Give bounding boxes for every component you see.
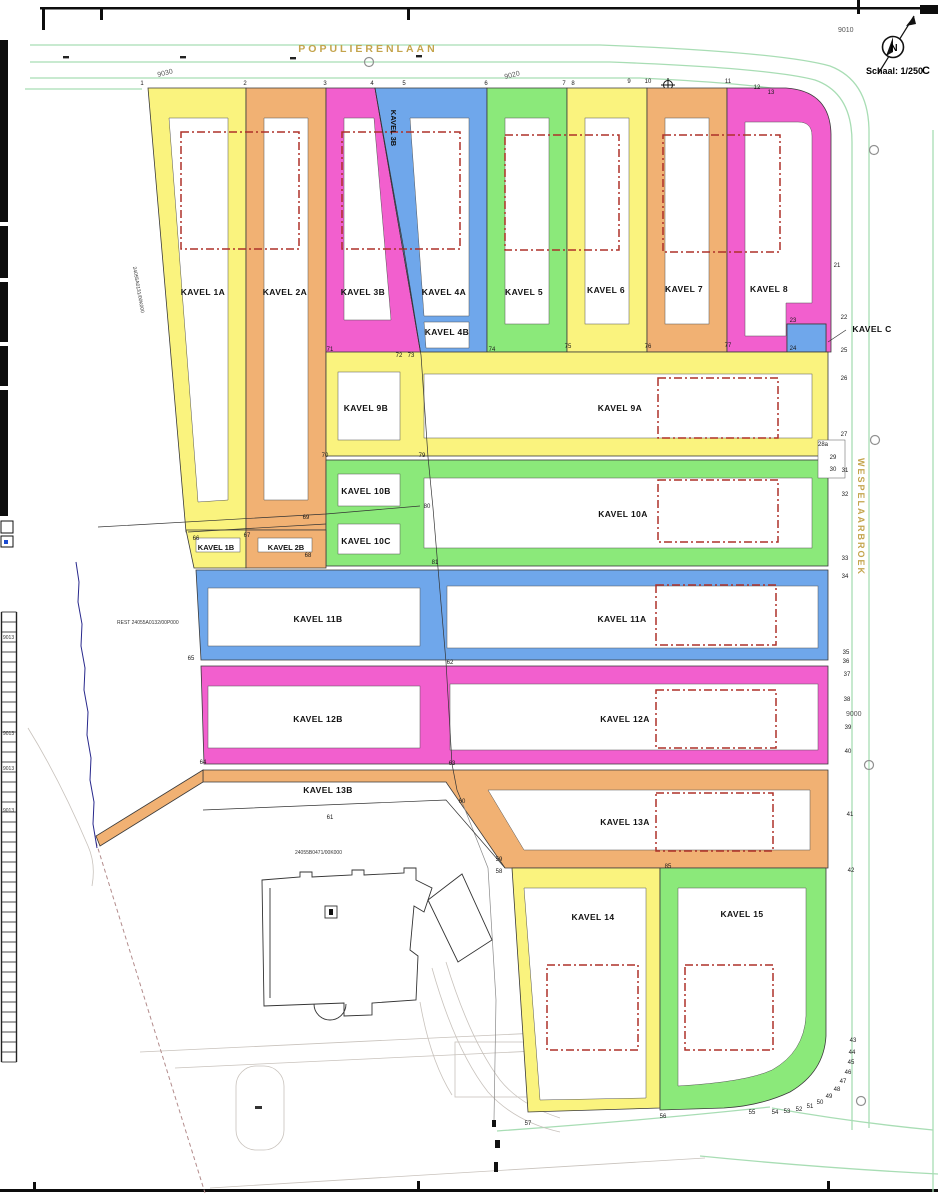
- road-dash: [180, 56, 186, 58]
- parcel-label: KAVEL 12A: [600, 714, 650, 724]
- boundary-point-57: 57: [525, 1121, 532, 1127]
- boundary-point-59: 59: [496, 857, 503, 863]
- yard-2a: [264, 118, 308, 500]
- adjacent-ref: 9013: [3, 808, 14, 814]
- access-strip-west: [96, 770, 203, 846]
- frame-tick: [42, 7, 45, 30]
- parcel-label: KAVEL 12B: [293, 714, 343, 724]
- boundary-point-38: 38: [844, 697, 851, 703]
- frame-tick: [827, 1181, 830, 1190]
- parcel-label: KAVEL 11A: [597, 614, 646, 624]
- boundary-point-53: 53: [784, 1109, 791, 1115]
- grid-label-9020: 9020: [504, 70, 521, 81]
- cadastral-ref-rest: REST 24055A0132/00P000: [117, 620, 179, 626]
- boundary-point-28a: 28a: [818, 442, 829, 448]
- boundary-point-45: 45: [848, 1060, 855, 1066]
- boundary-point-29: 29: [830, 455, 837, 461]
- boundary-point-11: 11: [725, 79, 732, 85]
- parcel-label: KAVEL 1B: [198, 543, 235, 552]
- building-bay: [314, 1004, 346, 1020]
- boundary-point-13: 13: [768, 90, 775, 96]
- cadastral-dashed-line: [96, 842, 205, 1193]
- boundary-point-24: 24: [790, 346, 797, 352]
- boundary-point-68: 68: [305, 553, 312, 559]
- boundary-point-76: 76: [645, 344, 652, 350]
- boundary-point-67: 67: [244, 533, 251, 539]
- manhole-icon: [871, 436, 880, 445]
- cadastral-ref-west: 24055A0131/00K000: [131, 266, 145, 314]
- old-parcel-boundary-continuation: [462, 802, 496, 1120]
- boundary-point-80: 80: [424, 504, 431, 510]
- frame-tick: [33, 1182, 36, 1190]
- boundary-point-73: 73: [408, 353, 415, 359]
- frame-tick: [407, 7, 410, 20]
- pond-mark: [255, 1106, 262, 1109]
- frame-tick: [417, 1181, 420, 1190]
- internal-boundary: [203, 800, 505, 868]
- boundary-point-33: 33: [842, 556, 849, 562]
- boundary-point-22: 22: [841, 315, 848, 321]
- boundary-point-2: 2: [243, 81, 247, 87]
- frame-tick: [857, 0, 860, 14]
- boundary-point-27: 27: [841, 432, 848, 438]
- building-outline: [262, 868, 432, 1016]
- boundary-point-85: 85: [665, 864, 672, 870]
- parcel-label: KAVEL 3B: [341, 287, 385, 297]
- cadastral-ref-building: 24055B0471/00K000: [295, 850, 342, 856]
- boundary-point-39: 39: [845, 725, 852, 731]
- boundary-point-75: 75: [565, 344, 572, 350]
- boundary-point-6: 6: [484, 81, 488, 87]
- boundary-point-43: 43: [850, 1038, 857, 1044]
- boundary-point-66: 66: [193, 536, 200, 542]
- parcel-label: KAVEL 9B: [344, 403, 388, 413]
- boundary-point-4: 4: [370, 81, 374, 87]
- parcel-label: KAVEL 13A: [600, 817, 650, 827]
- parcel-label: KAVEL 6: [587, 285, 625, 295]
- boundary-point-40: 40: [845, 749, 852, 755]
- boundary-point-50: 50: [817, 1100, 824, 1106]
- north-letter: N: [890, 43, 897, 54]
- boundary-point-44: 44: [849, 1050, 856, 1056]
- grid-label-9000: 9000: [846, 711, 862, 718]
- boundary-point-48: 48: [834, 1087, 841, 1093]
- building-annotation-mark: [329, 909, 333, 915]
- parcel-label: KAVEL 10A: [598, 509, 648, 519]
- boundary-point-42: 42: [848, 868, 855, 874]
- manhole-icon: [870, 146, 879, 155]
- building-wing: [428, 874, 492, 962]
- parcel-label: KAVEL 7: [665, 284, 703, 294]
- boundary-point-25: 25: [841, 348, 848, 354]
- parcel-label: KAVEL 9A: [598, 403, 642, 413]
- boundary-point-61: 61: [327, 815, 334, 821]
- parcel-label: KAVEL 13B: [303, 785, 353, 795]
- boundary-point-37: 37: [844, 672, 851, 678]
- grid-label-9010: 9010: [838, 27, 854, 34]
- parcel-label: KAVEL 1A: [181, 287, 225, 297]
- boundary-point-71: 71: [327, 347, 334, 353]
- boundary-point-3: 3: [323, 81, 327, 87]
- corner-mark: C: [922, 65, 930, 77]
- frame-bottom-line: [0, 1189, 938, 1192]
- scale-label: Schaal: 1/250: [866, 66, 923, 76]
- parcel-label: KAVEL 5: [505, 287, 543, 297]
- parcel-label: KAVEL 11B: [293, 614, 342, 624]
- parcel-label: KAVEL 2B: [268, 543, 305, 552]
- boundary-point-47: 47: [840, 1079, 847, 1085]
- parcel-label: KAVEL 4A: [422, 287, 466, 297]
- survey-mark: [494, 1162, 498, 1172]
- adjacent-ref: 9013: [3, 635, 14, 641]
- adjacent-sheet-bar: [0, 282, 8, 342]
- boundary-point-51: 51: [807, 1104, 814, 1110]
- boundary-point-30: 30: [830, 467, 837, 473]
- boundary-point-79: 79: [419, 453, 426, 459]
- boundary-point-56: 56: [660, 1114, 667, 1120]
- boundary-point-64: 64: [200, 760, 207, 766]
- street-name-top: POPULIERENLAAN: [298, 43, 437, 55]
- parcel-label: KAVEL 15: [720, 909, 763, 919]
- boundary-point-65: 65: [188, 656, 195, 662]
- boundary-point-63: 63: [449, 761, 456, 767]
- boundary-point-21: 21: [834, 263, 841, 269]
- boundary-point-52: 52: [796, 1107, 803, 1113]
- boundary-point-55: 55: [749, 1110, 756, 1116]
- boundary-point-26: 26: [841, 376, 848, 382]
- parcel-label: KAVEL 2A: [263, 287, 307, 297]
- boundary-point-58: 58: [496, 869, 503, 875]
- adjacent-sheet-bar: [0, 40, 8, 222]
- adjacent-garages-strip: [2, 612, 17, 1062]
- parcel-label: KAVEL 8: [750, 284, 788, 294]
- adjacent-ref: 9013: [3, 766, 14, 772]
- parcel-label: KAVEL 10B: [341, 486, 391, 496]
- boundary-point-60: 60: [459, 799, 466, 805]
- adjacent-sheet-bar: [0, 346, 8, 386]
- boundary-point-7: 7: [562, 81, 566, 87]
- parcel-label: KAVEL 14: [571, 912, 614, 922]
- parcel-label-vertical: KAVEL 3B: [389, 110, 398, 147]
- street-name-right: WESPELAARBROEK: [856, 458, 866, 576]
- boundary-point-62: 62: [447, 660, 454, 666]
- survey-mark: [495, 1140, 500, 1148]
- boundary-point-74: 74: [489, 347, 496, 353]
- boundary-point-34: 34: [842, 574, 849, 580]
- parcel-label: KAVEL C: [852, 324, 891, 334]
- boundary-point-81: 81: [432, 560, 439, 566]
- boundary-point-9: 9: [627, 79, 631, 85]
- frame-corner: [920, 5, 938, 14]
- boundary-point-36: 36: [843, 659, 850, 665]
- boundary-point-12: 12: [754, 85, 761, 91]
- road-edge: [700, 1156, 938, 1174]
- boundary-point-72: 72: [396, 353, 403, 359]
- boundary-point-54: 54: [772, 1110, 779, 1116]
- subdivision-plan: POPULIERENLAAN WESPELAARBROEK KAVEL 1A K…: [0, 0, 938, 1200]
- boundary-point-70: 70: [322, 453, 329, 459]
- north-needle-head: [906, 16, 916, 26]
- road-dash: [416, 55, 422, 57]
- boundary-point-69: 69: [303, 515, 310, 521]
- frame-tick: [100, 7, 103, 20]
- boundary-point-8: 8: [571, 81, 575, 87]
- boundary-point-41: 41: [847, 812, 854, 818]
- boundary-point-1: 1: [140, 81, 144, 87]
- adjacent-sheet-bar: [0, 390, 8, 516]
- road-dash: [290, 57, 296, 59]
- frame-top-line: [40, 7, 938, 10]
- boundary-point-32: 32: [842, 492, 849, 498]
- boundary-point-31: 31: [842, 468, 849, 474]
- west-jagged-boundary: [76, 562, 97, 848]
- adjacent-sheet-bar: [0, 226, 8, 278]
- boundary-point-35: 35: [843, 650, 850, 656]
- boundary-point-10: 10: [645, 79, 652, 85]
- manhole-icon: [857, 1097, 866, 1106]
- boundary-point-23: 23: [790, 318, 797, 324]
- survey-mark: [492, 1120, 496, 1127]
- boundary-point-46: 46: [845, 1070, 852, 1076]
- parcel-label: KAVEL 4B: [425, 327, 469, 337]
- boundary-point-49: 49: [826, 1094, 833, 1100]
- road-dash: [63, 56, 69, 58]
- boundary-point-77: 77: [725, 343, 732, 349]
- field-line: [28, 728, 93, 886]
- adjacent-sheet-box: [1, 521, 13, 533]
- adjacent-sheet-dot: [4, 540, 8, 544]
- parcel-label: KAVEL 10C: [341, 536, 391, 546]
- boundary-point-5: 5: [402, 81, 406, 87]
- field-line: [210, 1158, 705, 1188]
